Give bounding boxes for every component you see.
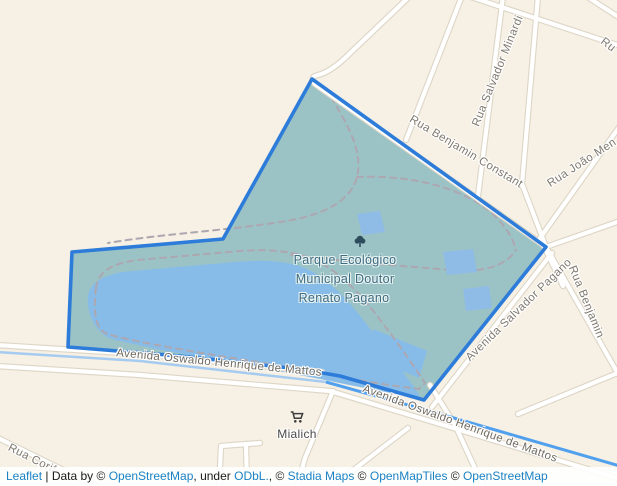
attribution-text: , ©	[269, 469, 288, 483]
attribution-text: ©	[447, 469, 463, 483]
leaflet-map[interactable]: Rua Benjamin Constant Rua Salvador Minar…	[0, 0, 617, 486]
attribution-text: | Data by ©	[42, 469, 109, 483]
attribution-bar: Leaflet | Data by © OpenStreetMap, under…	[0, 467, 617, 486]
tree-icon	[352, 234, 368, 250]
shopping-cart-icon	[290, 411, 305, 425]
park-label-line2: Municipal Doutor	[296, 272, 395, 286]
stadia-maps-link[interactable]: Stadia Maps	[288, 469, 355, 483]
osm-link[interactable]: OpenStreetMap	[109, 469, 194, 483]
openmaptiles-link[interactable]: OpenMapTiles	[370, 469, 448, 483]
osm-contributors-link[interactable]: OpenStreetMap	[463, 469, 548, 483]
park-label-line1: Parque Ecológico	[294, 253, 397, 267]
poi-label-mialich: Mialich	[277, 427, 316, 441]
map-tile-layer	[0, 0, 617, 486]
attribution-text: ©	[354, 469, 370, 483]
attribution-text: , under	[193, 469, 234, 483]
odbl-link[interactable]: ODbL.	[234, 469, 269, 483]
leaflet-link[interactable]: Leaflet	[6, 469, 42, 483]
park-label-line3: Renato Pagano	[299, 291, 390, 305]
